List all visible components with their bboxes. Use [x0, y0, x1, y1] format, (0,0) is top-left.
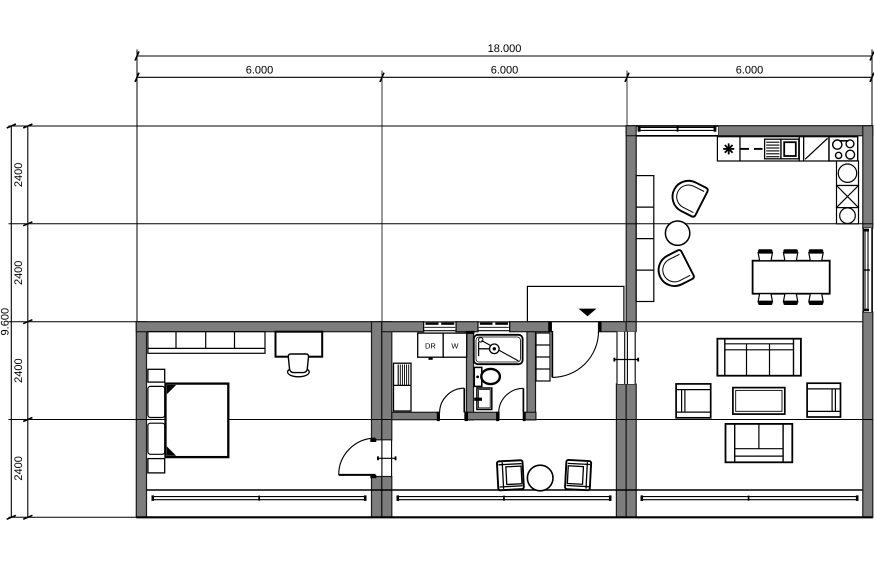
svg-text:2400: 2400 [13, 261, 25, 285]
svg-text:6.000: 6.000 [491, 65, 519, 77]
svg-text:W: W [451, 342, 459, 351]
svg-text:2400: 2400 [13, 163, 25, 187]
svg-text:6.000: 6.000 [736, 65, 764, 77]
svg-text:2400: 2400 [13, 358, 25, 382]
svg-text:6.000: 6.000 [246, 65, 274, 77]
svg-text:9.600: 9.600 [0, 308, 12, 336]
svg-text:2400: 2400 [13, 456, 25, 480]
svg-text:DR: DR [425, 342, 436, 351]
svg-text:18.000: 18.000 [488, 43, 522, 55]
